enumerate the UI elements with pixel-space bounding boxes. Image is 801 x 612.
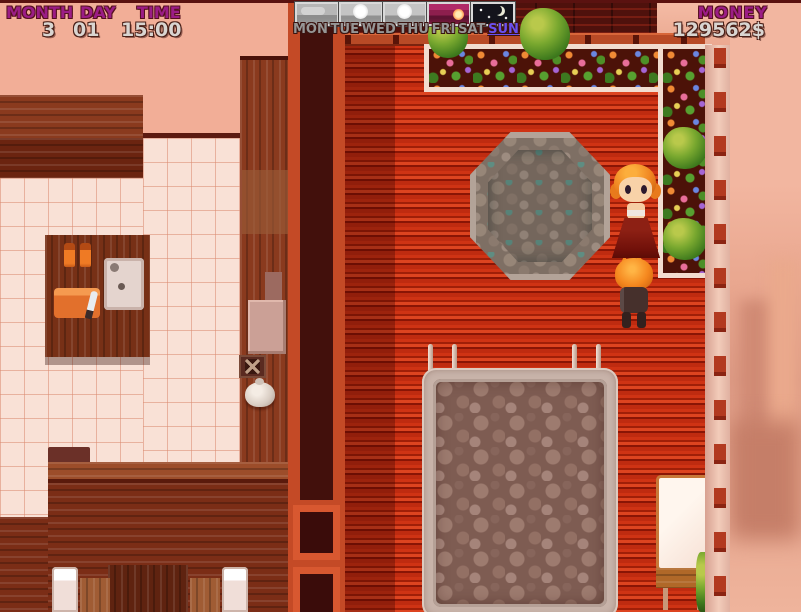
npc-dress bbox=[612, 218, 660, 258]
day-fri: FRI bbox=[432, 22, 456, 37]
cabinet-top-line bbox=[240, 56, 288, 60]
counter-tray[interactable] bbox=[48, 447, 90, 463]
day-sun-active: SUN bbox=[488, 22, 519, 37]
day-wed: WED bbox=[362, 22, 396, 37]
npc-eye bbox=[625, 185, 631, 194]
money-value: 129562$ bbox=[672, 19, 765, 41]
counter-bar bbox=[48, 462, 288, 483]
kettle-lid bbox=[255, 378, 264, 385]
week-forecast-bar: MON TUE WED THU FRI SAT SUN bbox=[293, 0, 533, 42]
cabinet-panel bbox=[242, 170, 288, 234]
wood-wall-lower bbox=[0, 138, 143, 178]
wall-base-line bbox=[143, 133, 240, 138]
npc-towel bbox=[627, 210, 645, 216]
day-sat: SAT bbox=[458, 22, 485, 37]
bath-pool[interactable] bbox=[422, 368, 618, 612]
npc-girl[interactable] bbox=[610, 163, 662, 259]
bush bbox=[663, 127, 707, 169]
day-thu: THU bbox=[399, 22, 429, 37]
dining-table[interactable] bbox=[108, 565, 188, 612]
railing-posts bbox=[714, 48, 726, 612]
spice-bottle[interactable] bbox=[64, 243, 75, 267]
divider-core bbox=[300, 0, 333, 500]
fridge[interactable] bbox=[248, 300, 286, 354]
money-panel: MONEY 129562$ bbox=[601, 0, 801, 45]
tile-floor-mid bbox=[143, 138, 240, 464]
sink-faucet bbox=[110, 263, 119, 272]
month-value: 3 bbox=[42, 19, 55, 41]
day-value: 01 bbox=[73, 19, 99, 41]
npc-eye bbox=[641, 185, 647, 194]
time-value: 15:00 bbox=[121, 19, 181, 41]
divider-wall bbox=[288, 0, 345, 612]
wood-floor-corner bbox=[0, 517, 48, 612]
wood-wall-upper bbox=[0, 95, 143, 138]
side-table bbox=[190, 578, 220, 612]
kettle[interactable] bbox=[245, 382, 275, 407]
chair[interactable] bbox=[222, 567, 248, 612]
divider-panel bbox=[293, 567, 340, 612]
date-panel: MONTH DAY TIME 3 01 15:00 bbox=[0, 0, 230, 45]
bath-pool-water bbox=[433, 379, 607, 607]
fridge-top bbox=[265, 272, 282, 302]
divider-panel bbox=[293, 505, 340, 560]
player-leg bbox=[622, 312, 631, 328]
player-leg bbox=[637, 312, 646, 328]
sink-drain bbox=[118, 283, 125, 290]
day-tue: TUE bbox=[331, 22, 359, 37]
bench-leg bbox=[663, 588, 668, 610]
island-shadow bbox=[45, 357, 150, 365]
interior-area bbox=[0, 0, 288, 612]
player-hair bbox=[615, 258, 653, 290]
hot-spring-water bbox=[488, 150, 592, 262]
npc-face bbox=[619, 177, 652, 202]
game-screen: MONTH DAY TIME 3 01 15:00 MON TUE WED TH… bbox=[0, 0, 801, 612]
bush bbox=[663, 218, 707, 260]
distant-haze bbox=[730, 420, 801, 540]
stove-burner bbox=[245, 359, 260, 374]
sky-backdrop bbox=[730, 0, 801, 612]
side-table bbox=[80, 578, 110, 612]
player-character[interactable] bbox=[612, 258, 656, 330]
day-labels-row: MON TUE WED THU FRI SAT SUN bbox=[293, 22, 519, 37]
day-mon: MON bbox=[293, 22, 328, 37]
wall-shadow bbox=[345, 46, 395, 612]
player-body bbox=[620, 287, 648, 313]
spice-bottle[interactable] bbox=[80, 243, 91, 267]
chair[interactable] bbox=[52, 567, 78, 612]
month-label: MONTH bbox=[6, 3, 73, 22]
hot-spring[interactable] bbox=[470, 132, 610, 280]
